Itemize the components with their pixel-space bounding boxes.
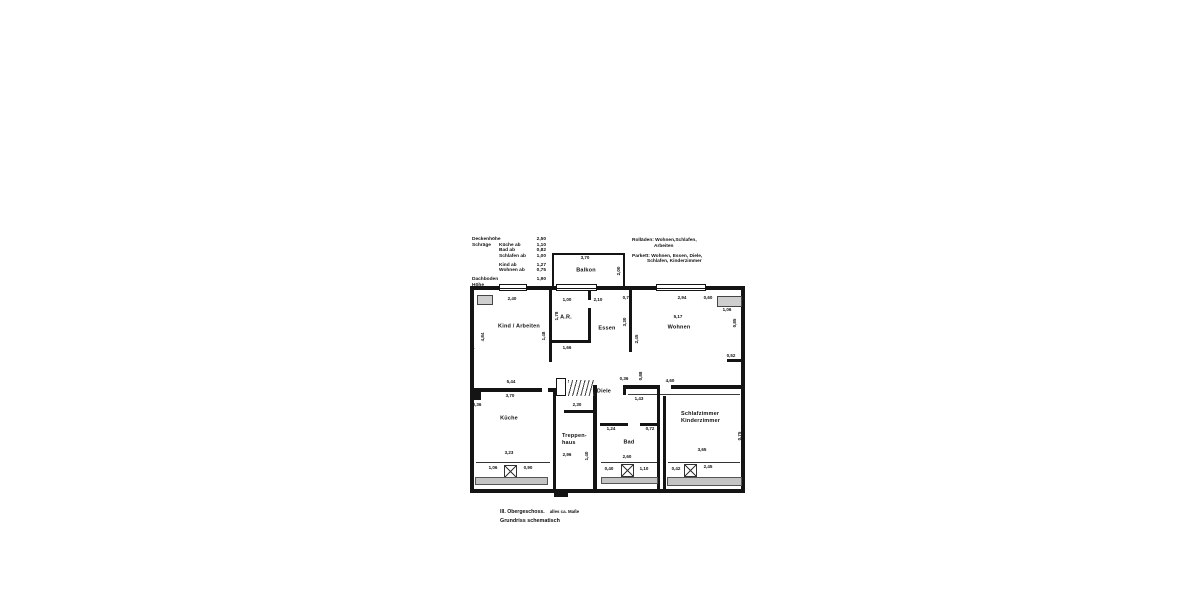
floor-title-text: III. Obergeschoss.: [500, 509, 545, 515]
dim-label: 1,78: [555, 312, 560, 321]
exterior-wall: [470, 489, 745, 493]
dim-label: 0,40: [605, 467, 614, 472]
note-text: Schlafen ab: [499, 254, 534, 260]
balcony-wall: [623, 253, 625, 286]
wall-segment: [564, 410, 597, 413]
dim-label: 0,42: [672, 467, 681, 472]
dim-label: 3,70: [581, 256, 590, 261]
dim-label: 2,45: [635, 335, 640, 344]
note-text: [472, 254, 499, 260]
dim-label: 1,06: [723, 308, 732, 313]
wall-segment: [671, 385, 745, 389]
window: [499, 284, 527, 291]
wall-segment: [623, 385, 626, 395]
dim-label: 0,72: [646, 427, 655, 432]
dim-label: 0,88: [639, 372, 644, 381]
wall-segment: [727, 359, 745, 362]
finishes-note: Rolläden: Wohnen,Schlafen, Arbeiten Park…: [632, 238, 732, 265]
room-label-line: haus: [562, 440, 587, 447]
dim-label: 3,30: [623, 318, 628, 327]
room-label-balkon: Balkon: [576, 268, 596, 275]
window: [656, 284, 706, 291]
dim-label: 3,23: [505, 451, 514, 456]
wall-segment: [549, 290, 552, 362]
dim-label: 1,43: [635, 397, 644, 402]
dim-label: 2,00: [617, 267, 622, 276]
exterior-wall-tab: [554, 493, 568, 497]
shutters-note-line: Arbeiten: [632, 244, 732, 250]
approx-note: alles ca. Maße: [550, 509, 580, 514]
ceiling-heights-note: Deckenhöhe2,50 SchrägeKüche ab1,10 Bad a…: [472, 237, 546, 288]
dim-label: 4,60: [666, 379, 675, 384]
room-label-diele: Diele: [597, 389, 611, 396]
knee-wall-line: [601, 462, 657, 463]
floor-plan-sheet: Deckenhöhe2,50 SchrägeKüche ab1,10 Bad a…: [0, 0, 1200, 600]
dim-label: 0,36: [620, 377, 629, 382]
dim-label: 5,17: [674, 315, 683, 320]
exterior-wall: [741, 286, 745, 493]
dim-label: 1,40: [585, 452, 590, 461]
wall-segment: [593, 385, 597, 493]
dim-label: 2,96: [563, 453, 572, 458]
dim-label: 1,00: [563, 298, 572, 303]
roof-window-icon: [684, 464, 697, 477]
floor-title: III. Obergeschoss.alles ca. Maße: [500, 509, 579, 517]
dimension-line: [628, 394, 740, 395]
room-label-bad: Bad: [624, 440, 635, 447]
plan-subtitle: Grundriss schematisch: [500, 517, 579, 525]
room-label-kueche: Küche: [500, 416, 518, 423]
dim-label: 2,10: [594, 298, 603, 303]
dim-label: 2,94: [678, 296, 687, 301]
wall-segment: [663, 396, 666, 489]
parquet-note-line: Schlafen, Kinderzimmer: [632, 259, 732, 265]
dim-label: 0,36: [473, 403, 482, 408]
dim-label: 0,76: [623, 296, 632, 301]
room-label-treppenhaus: Treppen- haus: [562, 433, 587, 446]
wall-segment: [588, 308, 591, 343]
room-label-kind-arbeiten: Kind / Arbeiten: [498, 324, 540, 331]
dim-label: 1,48: [542, 332, 547, 341]
window-band: [667, 477, 742, 486]
plan-title-block: III. Obergeschoss.alles ca. Maße Grundri…: [500, 509, 579, 525]
dim-label: 0,52: [727, 354, 736, 359]
note-row: Wohnen ab0,75: [472, 268, 546, 274]
dim-label: 4,84: [481, 333, 486, 342]
dim-label: 0,60: [704, 296, 713, 301]
dim-label: 1,10: [640, 467, 649, 472]
dim-label: 0,85: [733, 319, 738, 328]
note-value: 1,00: [534, 254, 546, 260]
room-label-line: Kinderzimmer: [681, 418, 720, 425]
chimney: [471, 388, 481, 400]
room-label-line: Treppen-: [562, 433, 587, 440]
roof-window-icon: [621, 464, 634, 477]
dim-label: 2,45: [704, 465, 713, 470]
note-text: Wohnen ab: [499, 268, 534, 274]
note-text: [472, 268, 499, 274]
dim-label: 3,50: [471, 343, 476, 352]
window-band: [477, 295, 493, 305]
room-label-schlafzimmer: Schlafzimmer Kinderzimmer: [681, 411, 720, 424]
window-band: [717, 296, 742, 307]
wall-segment: [657, 389, 660, 489]
dim-label: 1,24: [607, 427, 616, 432]
note-row: Schlafen ab1,00: [472, 254, 546, 260]
dim-label: 2,40: [508, 297, 517, 302]
stair-landing: [556, 378, 566, 396]
dim-label: 0,75: [738, 432, 743, 441]
stairs-icon: [568, 380, 594, 396]
wall-segment: [553, 392, 556, 493]
room-label-line: Schlafzimmer: [681, 411, 720, 418]
window-band: [475, 477, 548, 485]
wall-segment: [588, 290, 591, 300]
room-label-wohnen: Wohnen: [668, 325, 691, 332]
dim-label: 0,90: [524, 466, 533, 471]
wall-segment: [549, 340, 591, 343]
window-band: [601, 477, 658, 484]
balcony-wall: [552, 253, 554, 286]
knee-wall-line: [476, 462, 550, 463]
dim-label: 5,44: [507, 380, 516, 385]
wall-segment: [623, 385, 660, 389]
dim-label: 1,66: [563, 346, 572, 351]
note-value: 0,75: [534, 268, 546, 274]
dim-label: 1,06: [489, 466, 498, 471]
dim-label: 3,70: [506, 394, 515, 399]
dim-label: 3,65: [698, 448, 707, 453]
room-label-abstellraum: A.R.: [560, 315, 572, 322]
dim-label: 2,30: [573, 403, 582, 408]
dim-label: 2,60: [623, 455, 632, 460]
room-label-essen: Essen: [598, 326, 615, 333]
